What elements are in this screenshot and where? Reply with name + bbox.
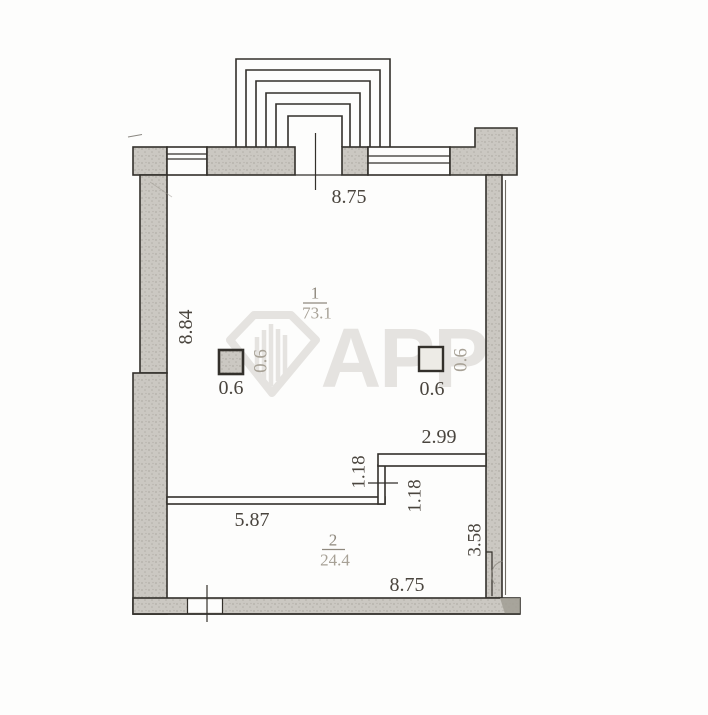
floor-plan-page: APP <box>0 0 708 715</box>
room1-area: 73.1 <box>302 304 332 323</box>
scan-mark <box>128 135 142 138</box>
stair-step <box>266 93 360 147</box>
column-left-depth-label: 0.6 <box>251 349 272 373</box>
dim-jog-right-label: 1.18 <box>405 479 426 512</box>
top-wall-pier <box>342 147 368 175</box>
dim-bottom-width-label: 8.75 <box>390 574 425 596</box>
staircase-symbol <box>236 59 390 147</box>
room1-number: 1 <box>311 284 320 303</box>
column-right-depth-label: 0.6 <box>451 348 472 372</box>
bottom-wall <box>133 598 520 614</box>
floor-plan: APP <box>0 0 708 715</box>
dim-right-lower-height-label: 3.58 <box>465 523 486 556</box>
dim-lower-partition-label: 5.87 <box>235 509 270 531</box>
left-wall-upper <box>140 175 167 373</box>
room1-label: 1 73.1 <box>302 284 332 323</box>
partition-lower-wall <box>167 497 385 504</box>
column-right-width-label: 0.6 <box>420 378 445 400</box>
top-wall-corner-block <box>133 147 167 175</box>
bottom-wall-opening <box>188 600 222 613</box>
partition-jog-wall <box>378 465 385 504</box>
stair-step <box>256 81 370 147</box>
top-wall-right-corner-block <box>450 128 517 175</box>
room2-label: 2 24.4 <box>320 531 350 570</box>
left-wall-lower <box>133 373 167 614</box>
dim-top-width-label: 8.75 <box>332 186 367 208</box>
partition-upper-wall <box>378 454 486 466</box>
dim-left-height-label: 8.84 <box>175 310 197 345</box>
column-left <box>219 350 243 374</box>
top-wall-block <box>207 147 295 175</box>
dim-upper-partition-label: 2.99 <box>422 426 457 448</box>
stair-step <box>236 59 390 147</box>
stair-step <box>276 104 350 147</box>
window-right <box>368 147 450 175</box>
window-left <box>167 147 207 175</box>
room2-area: 24.4 <box>320 551 350 570</box>
column-right <box>419 347 443 371</box>
right-wall <box>486 175 502 598</box>
room2-number: 2 <box>329 531 338 550</box>
column-left-width-label: 0.6 <box>219 377 244 399</box>
dim-jog-left-label: 1.18 <box>349 455 370 488</box>
top-wall <box>133 128 517 175</box>
